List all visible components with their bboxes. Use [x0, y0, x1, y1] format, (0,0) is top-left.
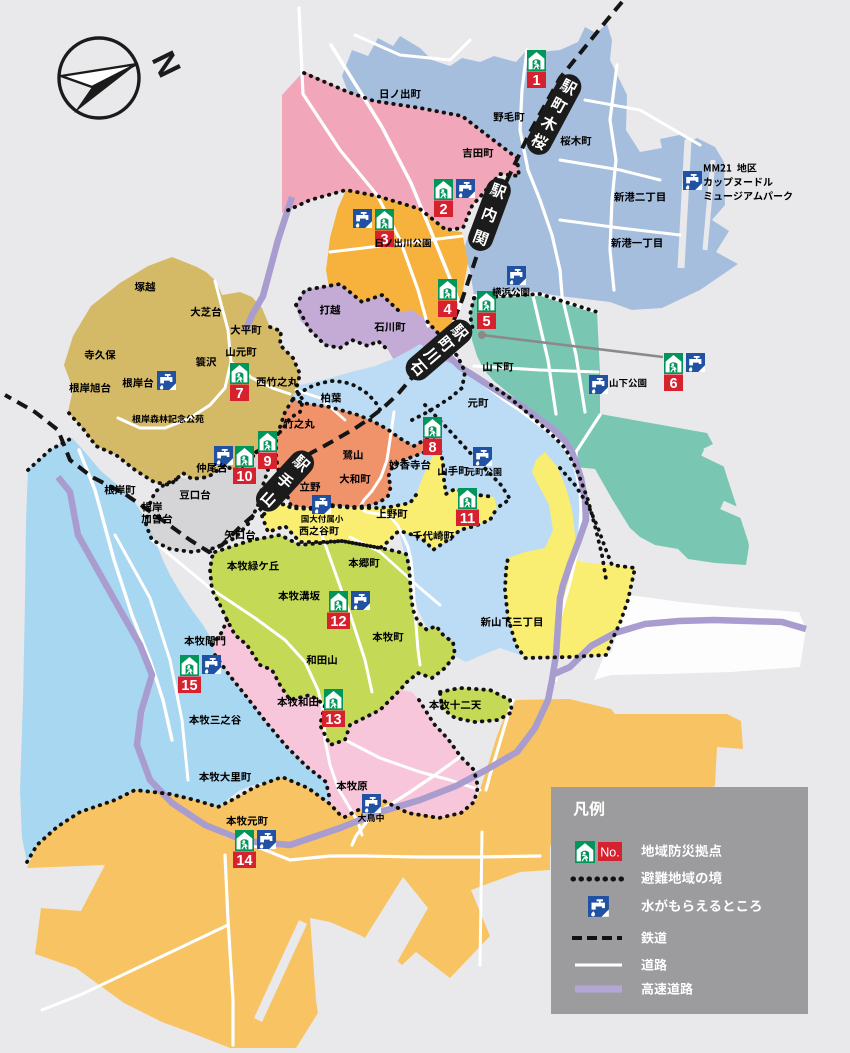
svg-text:No.: No.	[600, 846, 619, 860]
svg-text:10: 10	[236, 469, 252, 485]
svg-text:15: 15	[181, 678, 197, 694]
svg-text:14: 14	[236, 853, 252, 869]
svg-text:11: 11	[460, 511, 475, 527]
svg-text:2: 2	[439, 202, 447, 218]
svg-text:9: 9	[263, 454, 271, 470]
svg-text:8: 8	[428, 440, 436, 456]
svg-text:6: 6	[669, 376, 677, 392]
svg-text:5: 5	[482, 314, 490, 330]
svg-text:4: 4	[443, 302, 451, 318]
svg-text:7: 7	[235, 386, 243, 402]
svg-text:1: 1	[532, 73, 540, 89]
svg-text:13: 13	[325, 712, 341, 728]
svg-text:12: 12	[330, 614, 346, 630]
